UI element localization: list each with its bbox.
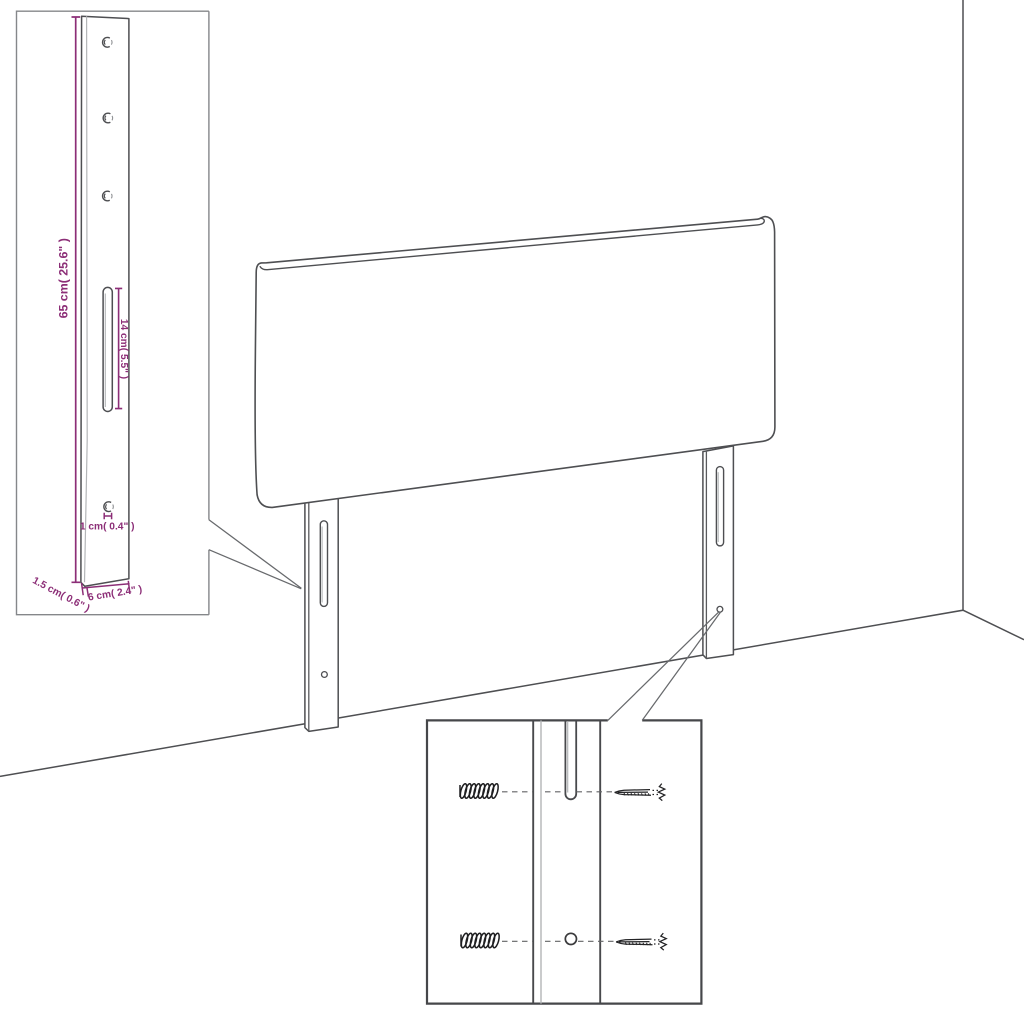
svg-text:14 cm( 5.5" ): 14 cm( 5.5" ) <box>118 319 129 379</box>
svg-text:65 cm( 25.6" ): 65 cm( 25.6" ) <box>56 238 70 318</box>
svg-text:1 cm( 0.4" ): 1 cm( 0.4" ) <box>80 522 135 533</box>
